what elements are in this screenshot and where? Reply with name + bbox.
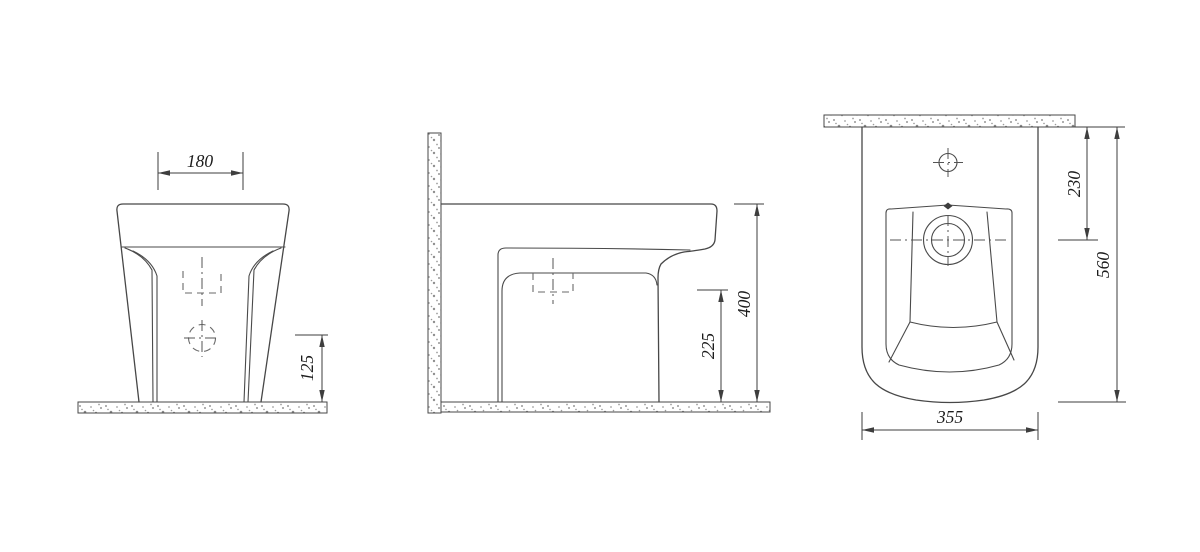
bowl-inner-wall-right	[987, 212, 997, 322]
arrowhead-left	[862, 427, 874, 432]
bidet-body-outline	[117, 204, 289, 402]
center-mark-diamond	[944, 203, 953, 210]
floor-section	[78, 402, 327, 413]
dimension-label: 180	[187, 151, 214, 171]
bowl-rim-outline	[886, 205, 1012, 372]
arrowhead-down	[1114, 390, 1119, 402]
right-leg-inner	[244, 251, 273, 402]
arrowhead-up	[1084, 127, 1089, 139]
front-view: 180 125	[78, 151, 328, 413]
bidet-three-view-drawing: 180 125 225 400	[0, 0, 1200, 552]
arrowhead-up	[718, 290, 723, 302]
arrowhead-down	[718, 390, 723, 402]
arrowhead-up	[754, 204, 759, 216]
dimension-label: 230	[1064, 171, 1084, 198]
dimension-front-top-width: 180	[158, 151, 243, 190]
arrowhead-up	[319, 335, 324, 347]
dimension-plan-total-depth: 560	[1058, 127, 1126, 402]
left-shoulder-leg	[125, 248, 153, 402]
dimension-side-total-height: 400	[734, 204, 764, 402]
dimension-label: 560	[1093, 252, 1113, 279]
wall-section	[824, 115, 1075, 127]
wall-section	[428, 133, 441, 413]
dimension-front-drain-height: 125	[295, 335, 328, 402]
dimension-label: 355	[936, 407, 964, 427]
arrowhead-up	[1114, 127, 1119, 139]
rim-underside-and-back	[498, 248, 690, 402]
bowl-inner-wall-left	[910, 212, 913, 322]
arrowhead-right	[231, 170, 243, 175]
side-view: 225 400	[428, 133, 770, 413]
arrowhead-left	[158, 170, 170, 175]
dimension-label: 125	[297, 355, 317, 382]
bidet-profile-outline	[441, 204, 717, 402]
base-top-line	[502, 273, 657, 402]
dimension-plan-width: 355	[862, 407, 1038, 440]
floor-section	[441, 402, 770, 412]
dimension-label: 400	[734, 291, 754, 318]
dimension-side-drain-height: 225	[697, 290, 728, 402]
arrowhead-down	[754, 390, 759, 402]
technical-drawing-canvas: 180 125 225 400	[0, 0, 1200, 552]
arrowhead-right	[1026, 427, 1038, 432]
dimension-plan-drain-from-wall: 230	[1058, 127, 1098, 240]
arrowhead-down	[319, 390, 324, 402]
dimension-label: 225	[698, 333, 718, 360]
bowl-bottom-curve	[910, 322, 997, 328]
bowl-slant-left	[889, 322, 910, 362]
plan-view: 230 560 355	[824, 115, 1126, 440]
arrowhead-down	[1084, 228, 1089, 240]
